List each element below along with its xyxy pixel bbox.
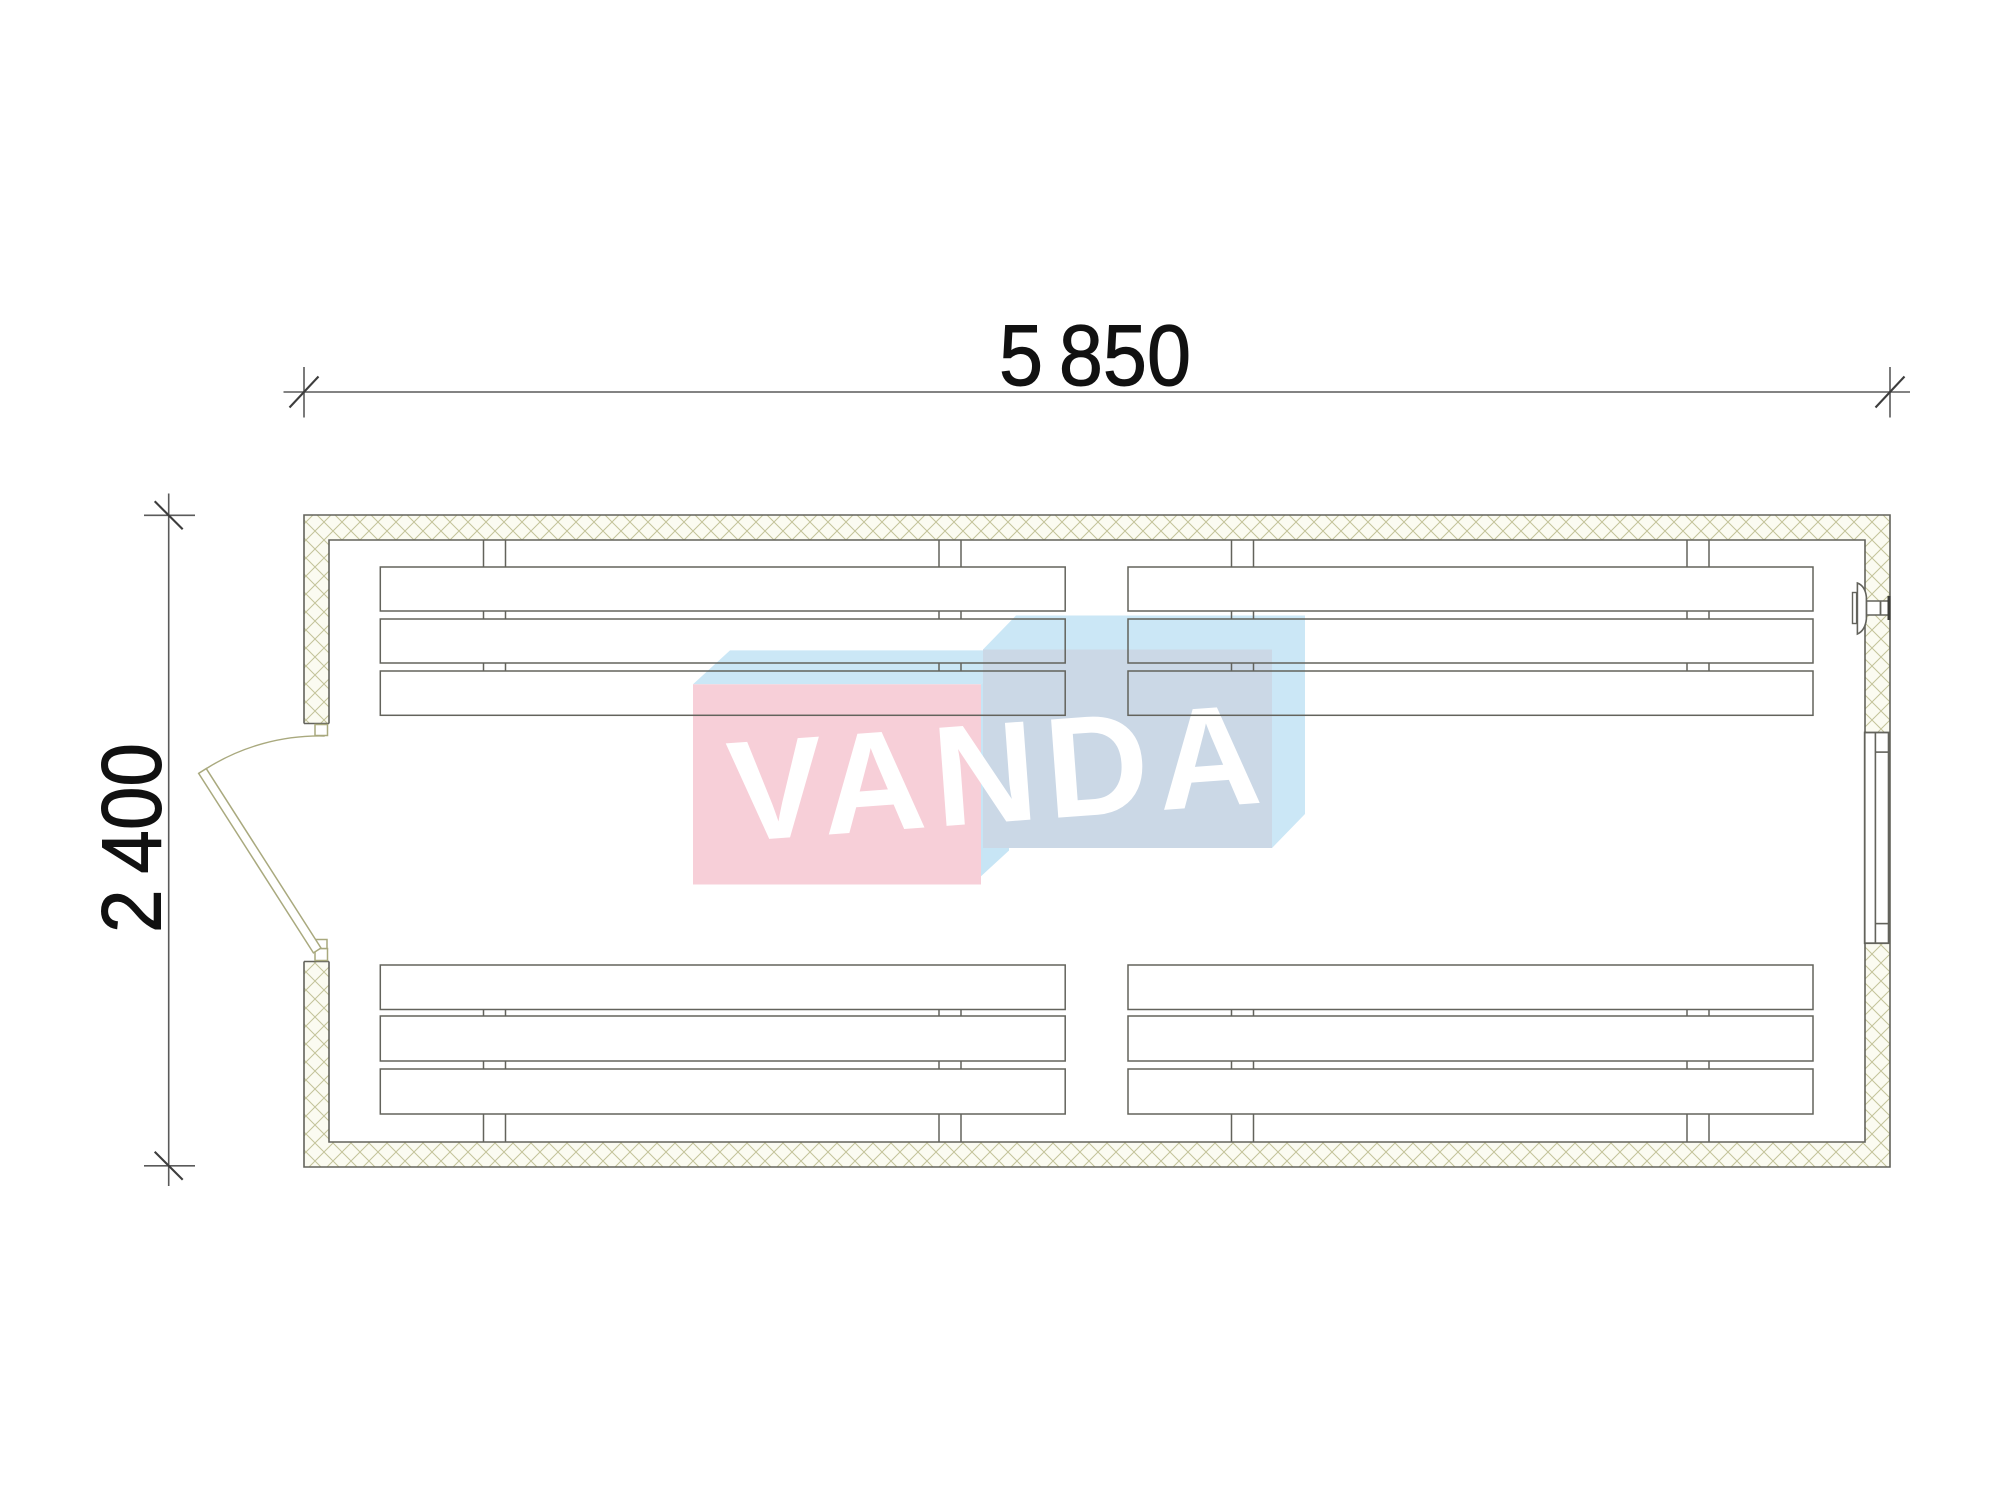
- svg-text:5 850: 5 850: [999, 308, 1191, 404]
- svg-text:2 400: 2 400: [85, 743, 179, 933]
